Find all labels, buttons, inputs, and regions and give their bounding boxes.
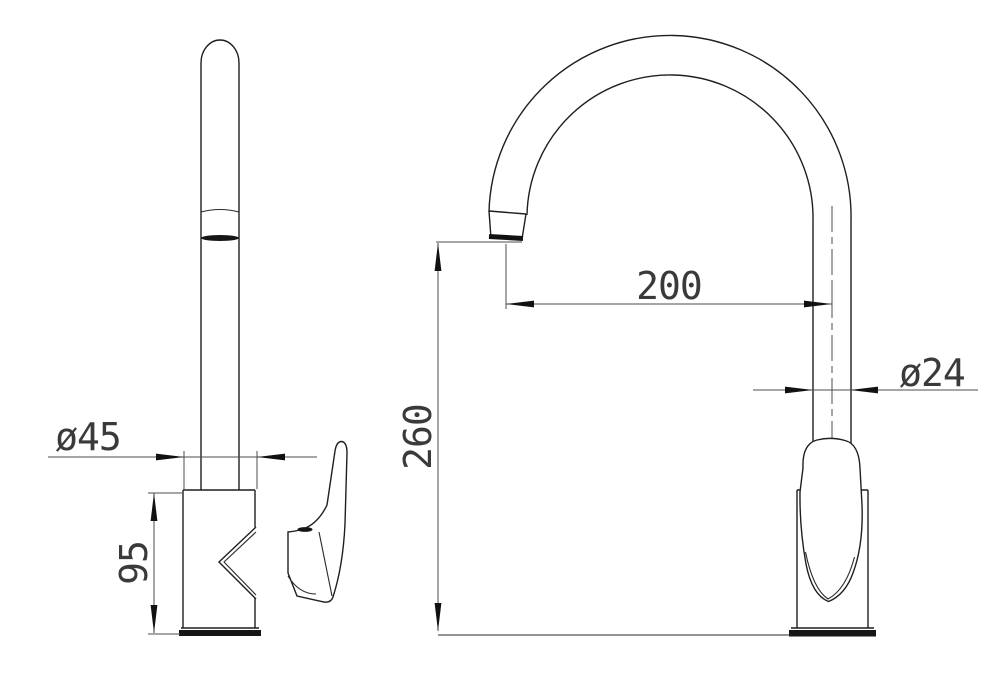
dim95-label: 95 — [112, 541, 156, 585]
dimension-body-diameter: ø45 — [48, 415, 317, 489]
dim95-arrow-top — [151, 493, 158, 521]
front-base-plate — [789, 630, 876, 637]
dim200-label: 200 — [636, 264, 702, 308]
dim24-label: ø24 — [899, 351, 965, 395]
side-spout-ring — [201, 235, 239, 241]
dim260-arrow-top — [435, 243, 442, 271]
side-handle-lever — [288, 442, 347, 603]
faucet-technical-drawing: ø45 95 260 200 — [0, 0, 1000, 693]
side-handle-detail-dot — [298, 527, 313, 532]
faucet-front-view — [438, 35, 876, 636]
dim45-arrow-right — [257, 454, 285, 461]
dim200-arrow-right — [804, 301, 832, 308]
dimension-spout-reach: 200 — [506, 244, 832, 309]
dimension-spout-height: 260 — [396, 242, 522, 631]
faucet-side-view — [179, 40, 347, 636]
dim260-arrow-bottom — [435, 603, 442, 631]
dim45-label: ø45 — [55, 415, 121, 459]
side-spout-seam — [201, 210, 239, 213]
nozzle-divider — [489, 211, 526, 214]
dim95-arrow-bottom — [151, 605, 158, 633]
dim24-arrow-right — [850, 387, 878, 394]
nozzle-outlet — [489, 237, 523, 239]
nozzle-right-edge — [522, 214, 526, 239]
side-base-plate — [179, 630, 261, 636]
gooseneck-outer-arc — [489, 35, 851, 221]
dimension-pipe-diameter: ø24 — [753, 351, 978, 395]
front-handle-lever — [800, 438, 862, 601]
dimension-body-height: 95 — [112, 493, 182, 634]
drawing-svg: ø45 95 260 200 — [0, 0, 1000, 693]
dim200-arrow-left — [506, 301, 534, 308]
nozzle-left-edge — [489, 211, 491, 238]
gooseneck-inner-arc — [527, 75, 813, 221]
side-spout-pipe — [201, 40, 239, 490]
dim24-arrow-left — [785, 387, 813, 394]
dim260-label: 260 — [396, 404, 440, 470]
dim45-arrow-left — [156, 454, 184, 461]
